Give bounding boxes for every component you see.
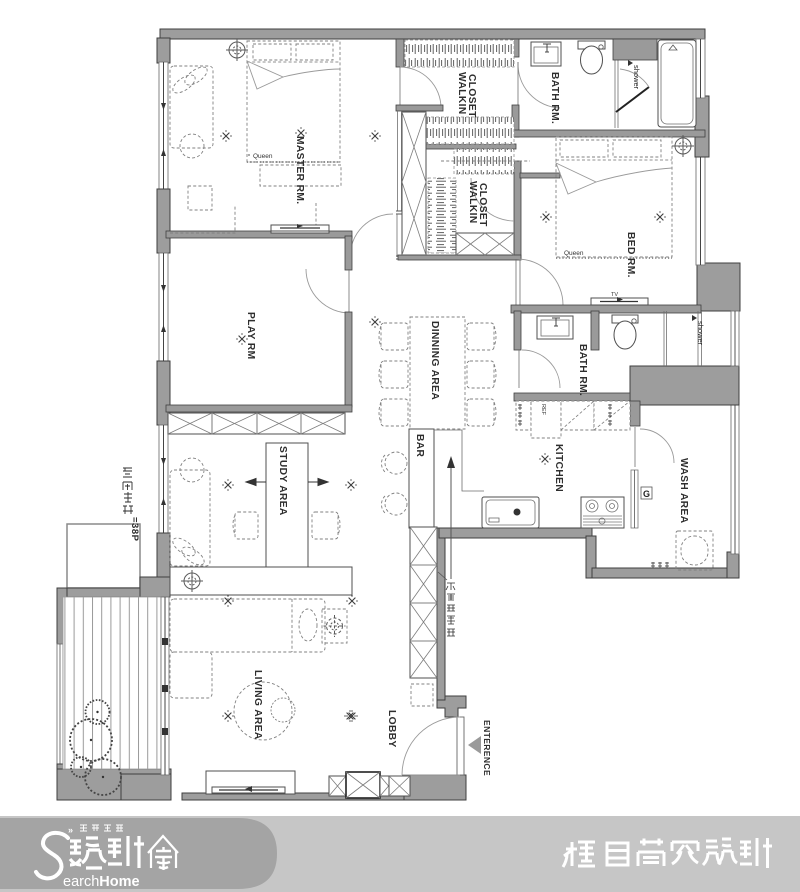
svg-text:WALKIN: WALKIN bbox=[456, 72, 467, 115]
svg-text:shower: shower bbox=[632, 65, 641, 90]
svg-text:KITCHEN: KITCHEN bbox=[553, 444, 564, 492]
svg-text:shower: shower bbox=[696, 321, 705, 346]
svg-text:G: G bbox=[643, 489, 650, 499]
svg-text:WASH AREA: WASH AREA bbox=[678, 458, 689, 524]
svg-text:BED RM.: BED RM. bbox=[625, 232, 636, 278]
svg-text:LOBBY: LOBBY bbox=[386, 710, 397, 748]
svg-text:BAR: BAR bbox=[414, 434, 425, 458]
svg-text:BATH RM.: BATH RM. bbox=[577, 344, 588, 396]
svg-text:MASTER RM.: MASTER RM. bbox=[294, 136, 305, 205]
svg-text:TV: TV bbox=[611, 292, 618, 298]
svg-text:=38P: =38P bbox=[129, 517, 140, 542]
svg-text:WALKIN: WALKIN bbox=[467, 181, 478, 224]
svg-text:Queen: Queen bbox=[253, 153, 273, 160]
svg-text:CLOSET: CLOSET bbox=[466, 74, 477, 118]
svg-text:CLOSET: CLOSET bbox=[477, 183, 488, 227]
svg-text:DINNING AREA: DINNING AREA bbox=[429, 321, 440, 400]
svg-text:earchHome: earchHome bbox=[63, 874, 140, 890]
svg-text:ENTERENCE: ENTERENCE bbox=[482, 720, 492, 776]
svg-text:PLAY RM: PLAY RM bbox=[245, 312, 256, 360]
svg-text:REF: REF bbox=[540, 404, 546, 416]
svg-text:LIVING AREA: LIVING AREA bbox=[252, 670, 263, 740]
svg-text:Queen: Queen bbox=[564, 250, 584, 257]
svg-text:»: » bbox=[68, 825, 73, 835]
svg-text:STUDY AREA: STUDY AREA bbox=[277, 446, 288, 516]
svg-text:BATH RM.: BATH RM. bbox=[549, 72, 560, 124]
